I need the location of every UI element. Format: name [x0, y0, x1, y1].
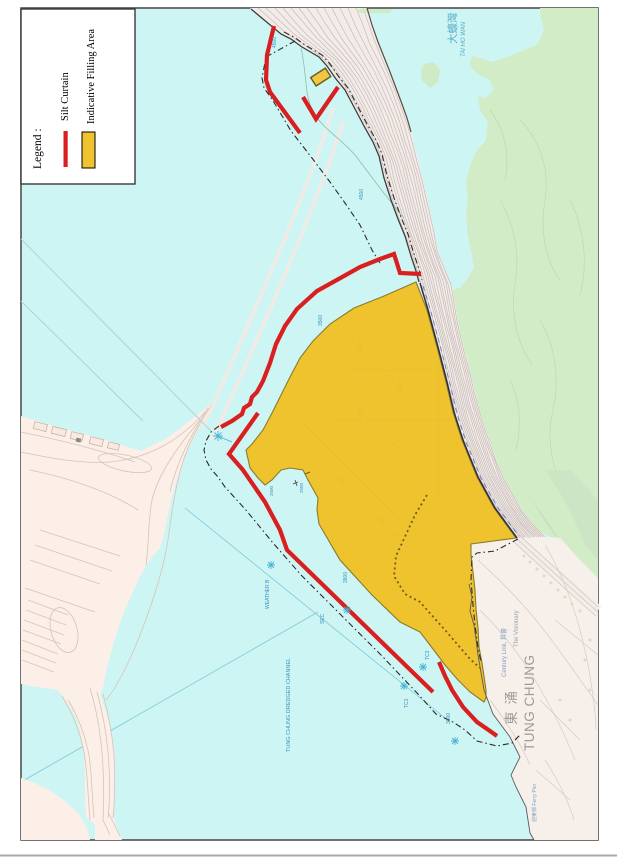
svg-text:Century Link, 昇薈: Century Link, 昇薈 — [500, 628, 508, 677]
svg-text:4500: 4500 — [272, 37, 278, 48]
svg-text:TAI HO WAN: TAI HO WAN — [461, 21, 467, 57]
svg-text:The Visionary: The Visionary — [514, 610, 520, 647]
svg-text:東涌: 東涌 — [504, 684, 519, 725]
svg-text:3500: 3500 — [318, 315, 324, 326]
svg-text:3800: 3800 — [446, 713, 452, 724]
svg-text:2500: 2500 — [269, 485, 274, 496]
svg-text:迎東邨 Ferry Pier: 迎東邨 Ferry Pier — [531, 783, 538, 822]
svg-text:2500: 2500 — [299, 482, 304, 493]
svg-text:Indicative Filling Area: Indicative Filling Area — [86, 29, 97, 124]
svg-text:WEATHER B: WEATHER B — [265, 579, 271, 609]
svg-text:Legend :: Legend : — [32, 128, 44, 169]
svg-text:4500: 4500 — [359, 189, 365, 200]
svg-text:3800: 3800 — [343, 572, 349, 583]
svg-text:SEC: SEC — [320, 613, 326, 624]
svg-text:TUNG CHUNG: TUNG CHUNG — [522, 655, 537, 752]
svg-text:大蠔灣: 大蠔灣 — [446, 13, 459, 45]
svg-text:TC3: TC3 — [425, 650, 431, 660]
svg-text:Silt Curtain: Silt Curtain — [60, 72, 71, 121]
svg-text:TUNG CHUNG DREDGED CHANNEL: TUNG CHUNG DREDGED CHANNEL — [286, 658, 292, 752]
svg-text:TC1: TC1 — [404, 698, 410, 708]
